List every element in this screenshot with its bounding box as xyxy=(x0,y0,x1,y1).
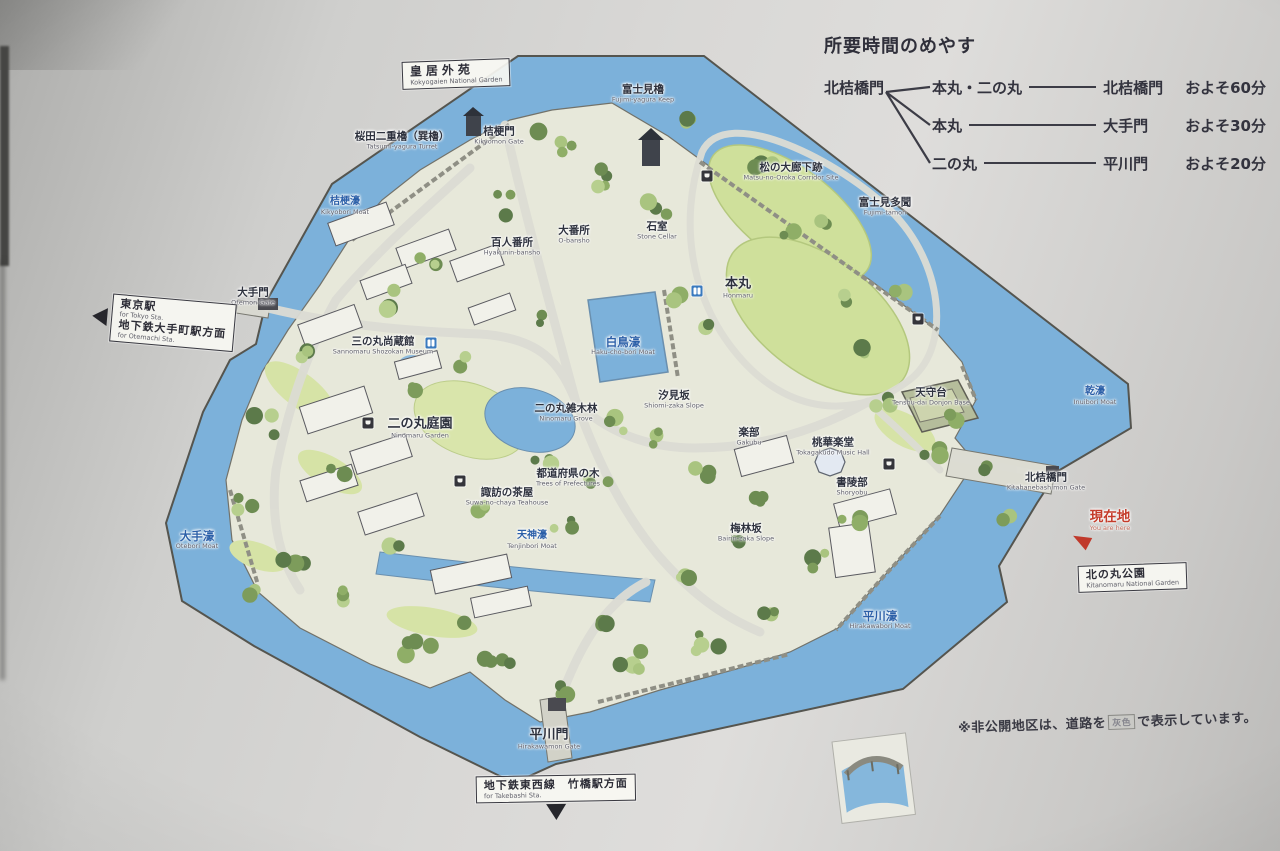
kitahanebashimon-structure xyxy=(1046,466,1059,478)
photo-left-edge-soft xyxy=(0,260,5,680)
bridge-inset-sketch xyxy=(832,733,915,823)
legend-row-1: 本丸大手門およそ30分 xyxy=(932,106,1266,144)
note-gray-swatch: 灰色 xyxy=(1108,714,1136,730)
legend-fork-lines xyxy=(884,68,932,182)
otemon-structure xyxy=(258,298,278,310)
hirakawamon-structure xyxy=(548,698,566,711)
legend-title: 所要時間のめやす xyxy=(824,32,1266,58)
photo-left-edge xyxy=(0,46,9,266)
legend-start-gate: 北桔橋門 xyxy=(824,68,884,106)
tokagakudo-building xyxy=(815,448,845,476)
legend-row-0: 本丸・二の丸北桔橋門およそ60分 xyxy=(932,68,1266,106)
photo-corner-shadow xyxy=(0,0,220,70)
time-estimate-legend: 所要時間のめやす 北桔橋門 本丸・二の丸北桔橋門およそ60分本丸大手門およそ30… xyxy=(824,32,1266,182)
legend-row-2: 二の丸平川門およそ20分 xyxy=(932,144,1266,182)
